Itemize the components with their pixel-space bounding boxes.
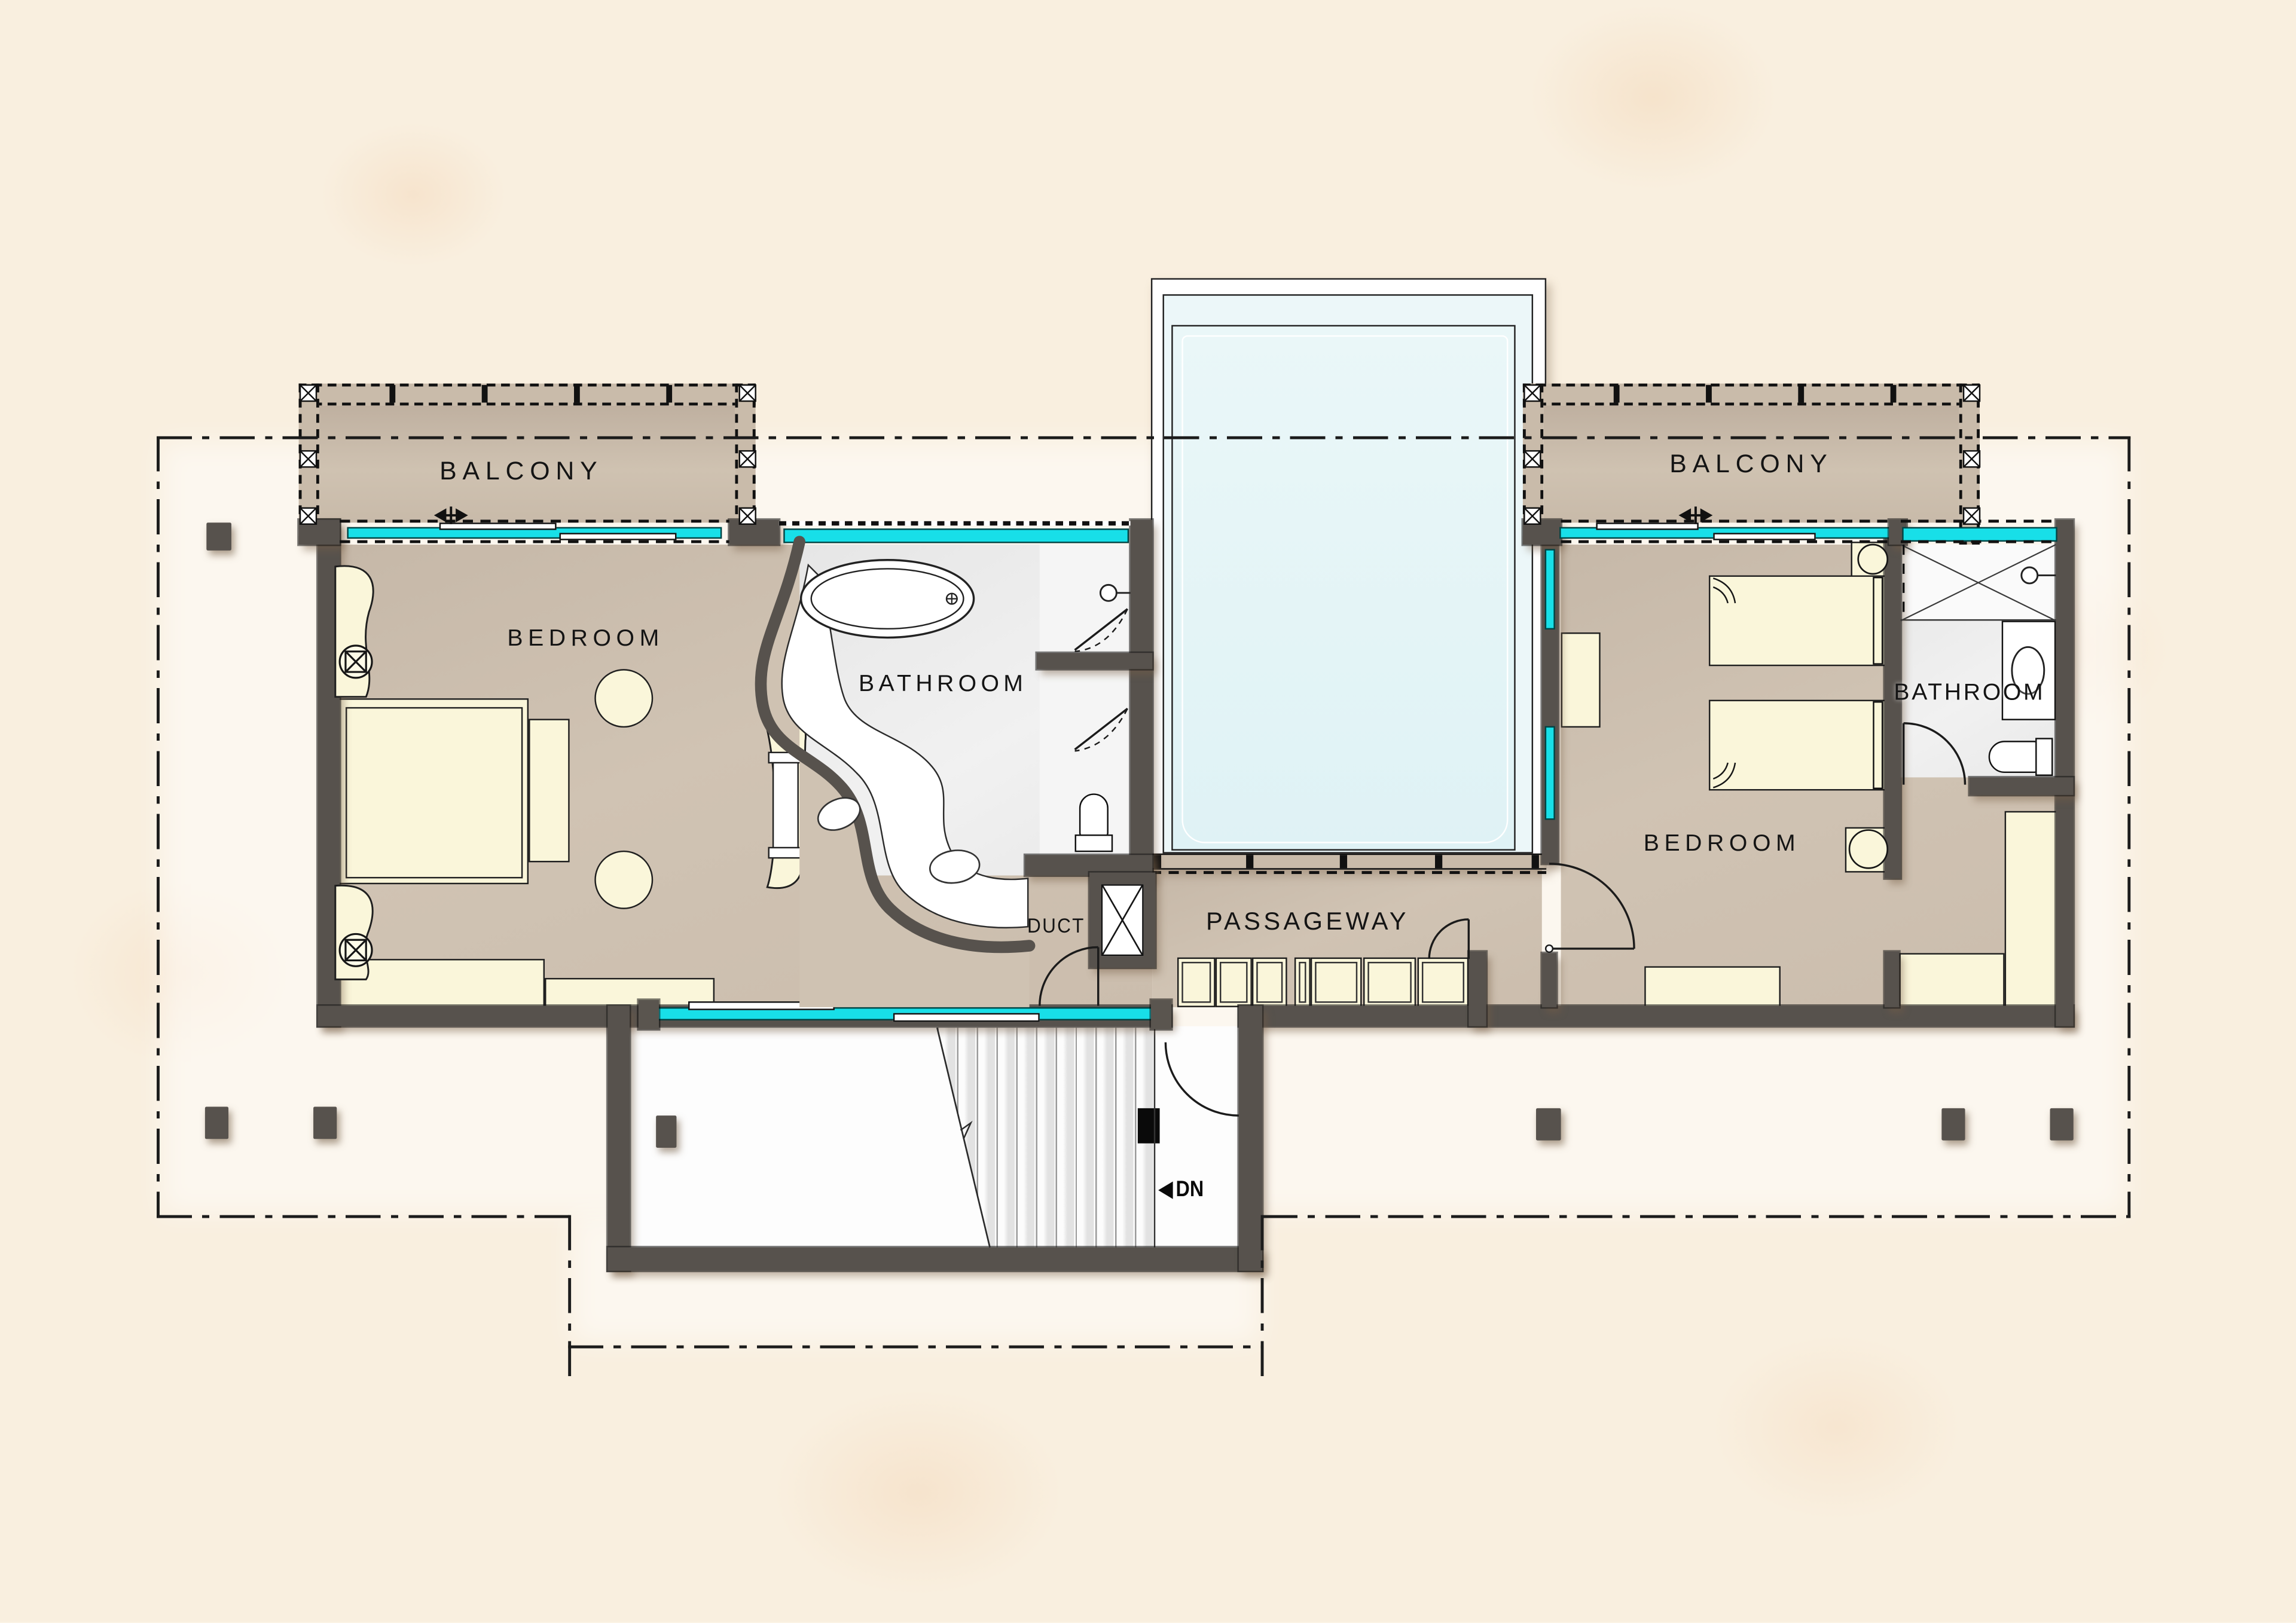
door-wc1-leaf	[1075, 609, 1128, 650]
sliding-arrow-icon	[436, 506, 1711, 524]
duct-x-icon	[1103, 886, 1142, 955]
door-swings	[1040, 609, 1965, 1115]
room-label-bedroom-right: BEDROOM	[1644, 832, 1800, 858]
room-label-passageway: PASSAGEWAY	[1206, 907, 1409, 937]
door-passage-right	[1429, 919, 1468, 959]
pillow-curl-icon	[1713, 578, 1735, 787]
vanity-left-detail	[769, 753, 802, 858]
room-label-balcony-left: BALCONY	[439, 456, 603, 487]
door-passage-duct	[1040, 947, 1098, 1005]
room-label-balcony-right: BALCONY	[1669, 449, 1833, 479]
door-bathroom-right	[1904, 723, 1965, 785]
room-label-bathroom-main: BATHROOM	[859, 672, 1027, 698]
floor-plan: BALCONY BALCONY BEDROOM BATHROOM BEDROOM…	[0, 0, 2296, 1622]
room-label-duct: DUCT	[1027, 913, 1085, 937]
door-bedroom-right	[1549, 864, 1634, 949]
door-lobby	[1165, 1043, 1238, 1115]
stair-break-line	[937, 1028, 990, 1247]
dn-label: DN	[1176, 1177, 1204, 1202]
dn-arrow-icon	[1158, 1181, 1173, 1198]
door-wc2-leaf	[1075, 708, 1128, 750]
plan-linework	[0, 0, 2296, 1622]
nightstand-circles	[1849, 545, 1888, 868]
bathtub	[801, 560, 974, 638]
wall-sink-icon	[1100, 567, 2056, 694]
room-label-bedroom-left: BEDROOM	[507, 626, 664, 653]
stairs-down-annotation: DN	[1158, 1177, 1207, 1202]
room-label-bathroom-right: BATHROOM	[1894, 681, 2045, 707]
